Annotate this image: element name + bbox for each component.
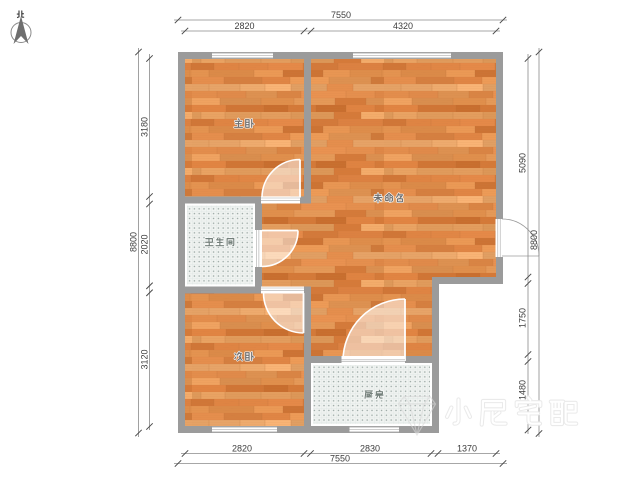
svg-text:4320: 4320 <box>393 21 413 31</box>
svg-text:3120: 3120 <box>140 349 150 369</box>
svg-text:1370: 1370 <box>457 444 477 454</box>
svg-text:7550: 7550 <box>331 10 351 20</box>
svg-text:8800: 8800 <box>129 232 139 252</box>
svg-text:3180: 3180 <box>140 117 150 137</box>
svg-text:1480: 1480 <box>518 380 528 400</box>
svg-text:7550: 7550 <box>330 454 350 464</box>
svg-text:2820: 2820 <box>234 21 254 31</box>
svg-text:2820: 2820 <box>232 444 252 454</box>
svg-text:5090: 5090 <box>518 153 528 173</box>
svg-text:2020: 2020 <box>140 234 150 254</box>
svg-text:8800: 8800 <box>529 230 539 250</box>
svg-text:2830: 2830 <box>360 444 380 454</box>
svg-text:1750: 1750 <box>518 308 528 328</box>
